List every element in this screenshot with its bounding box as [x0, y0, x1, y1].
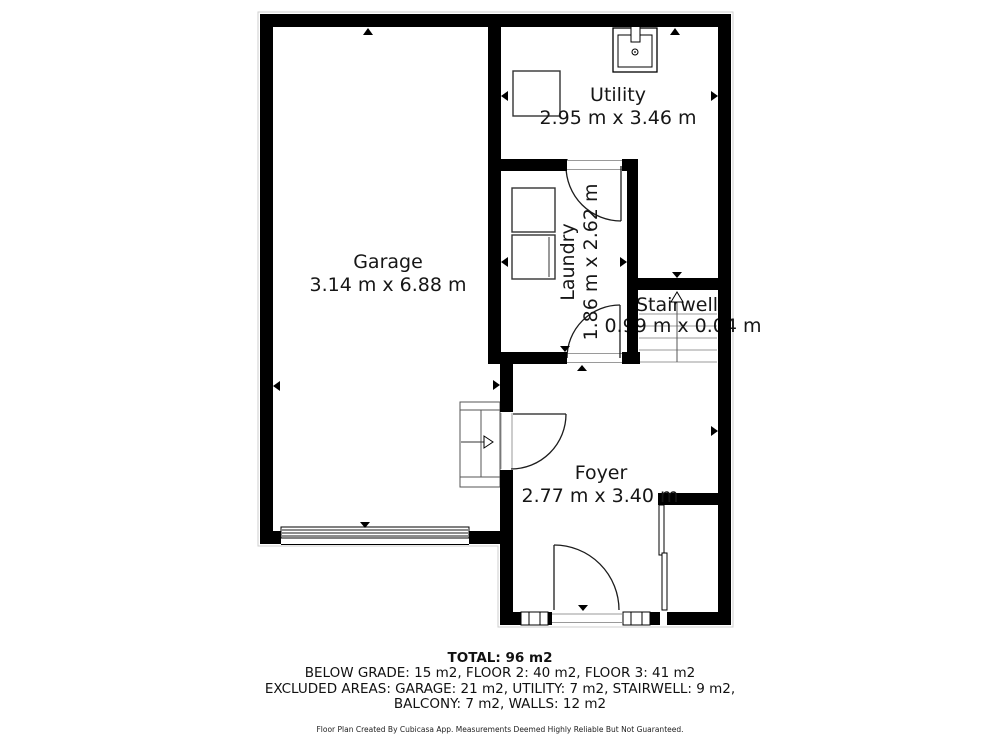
garage-dims: 3.14 m x 6.88 m [309, 274, 466, 296]
foyer-dims: 2.77 m x 3.40 m [521, 485, 678, 507]
laundry-dims: 1.86 m x 2.62 m [580, 183, 602, 340]
sliding-door-icon [659, 505, 667, 610]
floors-area-line: BELOW GRADE: 15 m2, FLOOR 2: 40 m2, FLOO… [0, 666, 1000, 681]
garage-door-icon [281, 527, 469, 545]
foyer-door [511, 414, 566, 469]
washer-dryer-icons [512, 188, 555, 279]
floor-plan: Stairwell 0.99 m x 0.04 m [0, 0, 1000, 750]
total-area: TOTAL: 96 m2 [0, 651, 1000, 666]
entrance-door [554, 545, 619, 610]
foyer-label: Foyer [575, 462, 628, 484]
utility-dims: 2.95 m x 3.46 m [539, 107, 696, 129]
area-summary: TOTAL: 96 m2 BELOW GRADE: 15 m2, FLOOR 2… [0, 651, 1000, 737]
utility-label: Utility [590, 84, 646, 106]
sink-icon [613, 26, 657, 72]
excluded-areas-line-2: BALCONY: 7 m2, WALLS: 12 m2 [0, 697, 1000, 712]
laundry-label: Laundry [557, 223, 579, 300]
excluded-areas-line-1: EXCLUDED AREAS: GARAGE: 21 m2, UTILITY: … [0, 682, 1000, 697]
disclaimer-text: Floor Plan Created By Cubicasa App. Meas… [0, 722, 1000, 737]
garage-label: Garage [353, 251, 423, 273]
floor-plan-page: Stairwell 0.99 m x 0.04 m [0, 0, 1000, 750]
lower-stairs-icon [460, 402, 500, 487]
